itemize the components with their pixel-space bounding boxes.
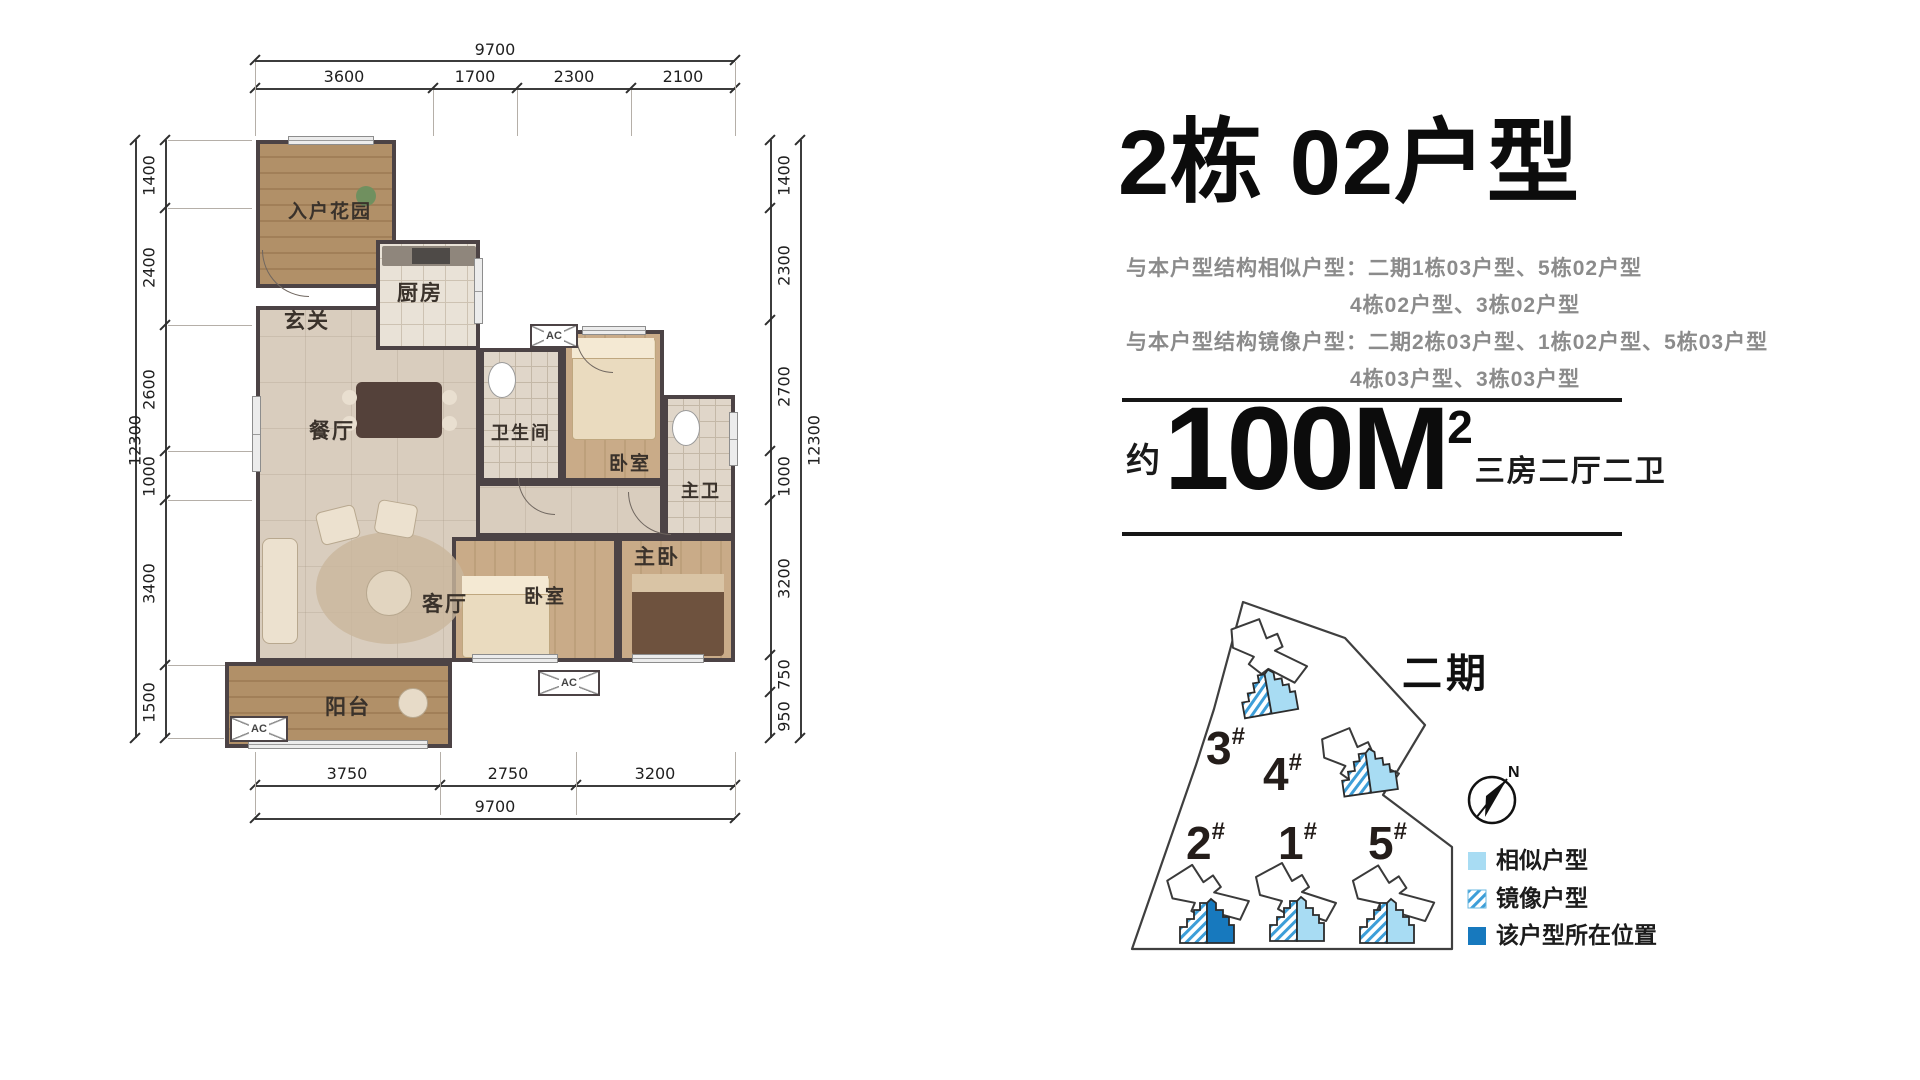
similar-line1: 二期1栋03户型、5栋02户型 [1368,257,1642,280]
label-bathroom: 卫生间 [491,419,551,445]
dim-right-seg: 1400 [775,141,794,211]
dim-top-seg: 2100 [638,67,728,86]
witness-line [168,738,224,739]
witness-line [440,752,441,815]
similar-label: 与本户型结构相似户型： [1126,257,1368,280]
witness-line [735,752,736,815]
witness-line [168,500,252,501]
window [472,654,558,663]
label-bedroom-top: 卧室 [609,449,651,476]
divider-bottom [1122,532,1622,536]
dining-chair [442,416,457,431]
dim-top-seg: 1700 [430,67,520,86]
label-master-bath: 主卫 [681,477,721,503]
area-value: 100M [1164,398,1447,502]
dim-left-seg: 2400 [140,233,159,303]
mirror-label: 与本户型结构镜像户型： [1126,331,1368,354]
dim-left-seg: 1500 [140,668,159,738]
window [252,396,261,472]
toilet [488,362,516,398]
label-foyer: 玄关 [284,305,330,335]
floorplan: 9700 3600 1700 2300 2100 12300 1400 2400… [120,40,865,855]
dim-right-seg: 2700 [775,352,794,422]
label-balcony: 阳台 [325,691,371,721]
balcony-table [398,688,428,718]
dim-bottom-seg: 3750 [302,764,392,783]
dining-chair [342,390,357,405]
mirror-line1: 二期2栋03户型、1栋02户型、5栋03户型 [1368,331,1768,354]
dim-right-seg: 950 [775,682,794,752]
legend-swatch-mirror [1468,890,1486,908]
window [632,654,704,663]
dim-bottom-seg: 3200 [610,764,700,783]
window [288,136,374,145]
armchair [373,499,418,539]
dim-line [770,140,772,738]
label-dining: 餐厅 [309,415,355,445]
dim-line [255,785,735,787]
dim-line [165,140,167,738]
phase-label: 二期 [1402,652,1490,696]
page-title: 2栋 02户型 [1118,88,1580,221]
similar-line2: 4栋02户型、3栋02户型 [1350,294,1580,317]
mirror-units-row: 与本户型结构镜像户型：二期2栋03户型、1栋02户型、5栋03户型 [1126,326,1768,356]
area-prefix: 约 [1126,433,1160,482]
dim-left-seg: 3400 [140,549,159,619]
witness-line [168,451,252,452]
dim-top-seg: 3600 [299,67,389,86]
legend-label-similar: 相似户型 [1496,847,1588,873]
similar-units-row2: 4栋02户型、3栋02户型 [1350,289,1580,319]
window [582,326,646,335]
dim-top-overall: 9700 [450,40,540,59]
witness-line [255,752,256,815]
witness-line [168,140,252,141]
witness-line [576,752,577,815]
legend-label-current: 该户型所在位置 [1496,922,1657,948]
ac-label: AC [559,677,579,689]
witness-line [168,208,252,209]
dim-right-seg: 2300 [775,231,794,301]
site-plan: 3# 4# 2# 1# 5# 二期 N 相似户型 镜像户型 该户型所在位置 [1080,575,1720,975]
label-kitchen: 厨房 [397,277,443,307]
dining-table [356,382,442,438]
dim-left-seg: 2600 [140,355,159,425]
door-arc [262,250,309,297]
dim-line [800,140,802,738]
window [729,412,738,466]
ac-unit: AC [230,716,288,742]
area-row: 约 100M 2 三房二厅二卫 [1126,398,1667,502]
dim-line [255,60,735,62]
label-bedroom-mid: 卧室 [524,582,566,609]
dim-right-seg: 3200 [775,544,794,614]
coffee-table [366,570,412,616]
bed-pillows [632,574,724,592]
witness-line [631,90,632,136]
dim-right-overall: 12300 [805,401,824,481]
witness-line [517,90,518,136]
north-arrow-icon: N [1469,764,1520,823]
legend: 相似户型 镜像户型 该户型所在位置 [1468,847,1657,948]
window [474,258,483,324]
legend-swatch-similar [1468,852,1486,870]
dim-bottom-overall: 9700 [450,797,540,816]
label-entry-garden: 入户花园 [288,197,372,224]
similar-units-row: 与本户型结构相似户型：二期1栋03户型、5栋02户型 [1126,252,1642,282]
north-label: N [1508,764,1520,781]
dim-line [255,818,735,820]
ac-label: AC [544,330,564,342]
label-master-bedroom: 主卧 [634,541,680,571]
dim-line [255,88,735,90]
dim-bottom-seg: 2750 [463,764,553,783]
ac-unit: AC [538,670,600,696]
area-layout-type: 三房二厅二卫 [1475,446,1667,490]
witness-line [433,90,434,136]
legend-label-mirror: 镜像户型 [1496,885,1588,911]
dim-left-seg: 1000 [140,442,159,512]
witness-line [735,62,736,136]
legend-swatch-current [1468,927,1486,945]
sofa [262,538,298,644]
dim-left-seg: 1400 [140,141,159,211]
area-superscript: 2 [1447,400,1473,454]
ac-unit: AC [530,324,578,348]
ac-label: AC [249,723,269,735]
dim-top-seg: 2300 [529,67,619,86]
dining-chair [442,390,457,405]
witness-line [255,62,256,136]
witness-line [168,325,252,326]
dim-right-seg: 1000 [775,442,794,512]
stove [412,248,450,264]
label-living: 客厅 [422,588,468,618]
toilet [672,410,700,446]
